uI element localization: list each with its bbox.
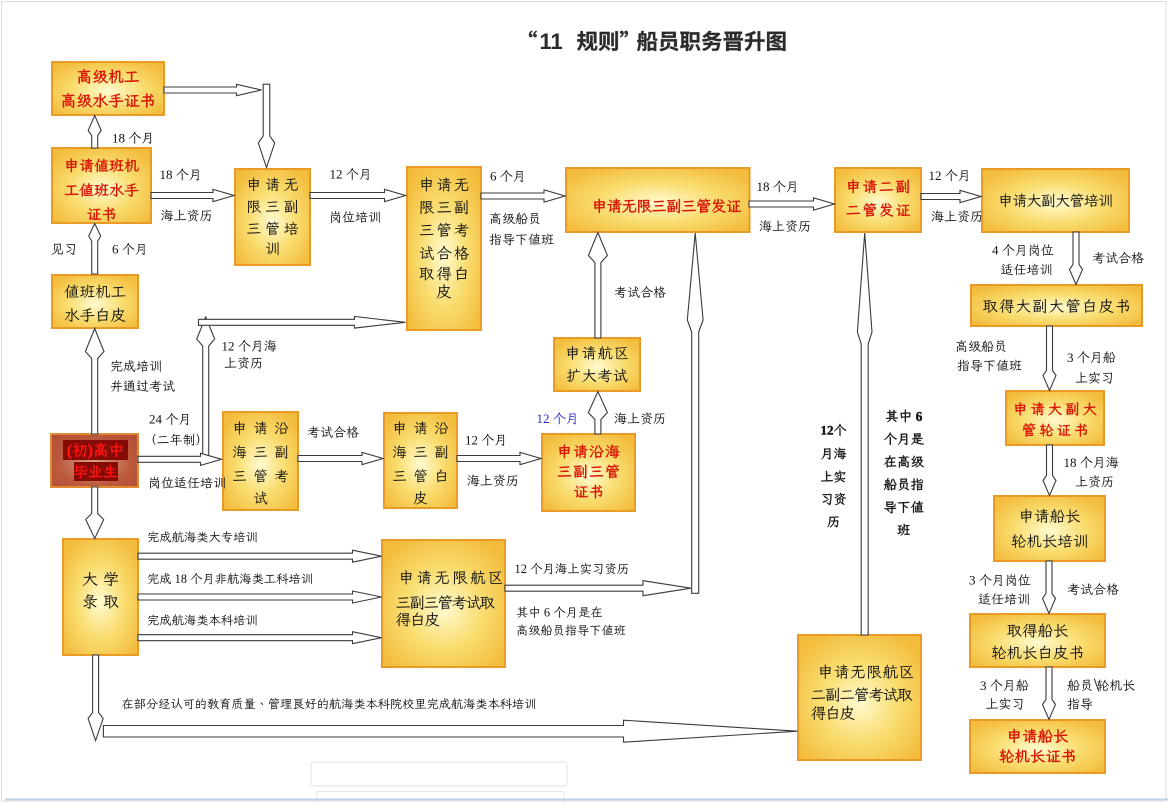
svg-text:(: ( [67, 443, 72, 460]
svg-text:12: 12 [821, 423, 834, 438]
svg-text:6: 6 [112, 242, 119, 257]
svg-text:6: 6 [544, 606, 550, 620]
svg-text:4: 4 [992, 243, 999, 258]
svg-text:12: 12 [465, 432, 478, 447]
svg-text:24: 24 [149, 412, 163, 427]
svg-text:12: 12 [222, 338, 235, 353]
svg-text:3: 3 [980, 678, 987, 693]
svg-text:18: 18 [757, 179, 770, 194]
svg-text:12: 12 [929, 168, 942, 183]
svg-text:11: 11 [540, 29, 563, 54]
svg-text:12: 12 [515, 562, 527, 576]
svg-text:18: 18 [175, 572, 187, 586]
svg-text:12: 12 [537, 411, 550, 426]
svg-text:18: 18 [1064, 455, 1077, 470]
svg-text:6: 6 [490, 169, 497, 184]
svg-text:12: 12 [330, 167, 343, 182]
svg-text:18: 18 [160, 167, 173, 182]
svg-text:18: 18 [112, 130, 125, 145]
svg-text:): ) [88, 443, 93, 460]
svg-text:6: 6 [916, 409, 923, 424]
svg-text:3: 3 [1067, 350, 1074, 365]
svg-text:3: 3 [969, 573, 976, 588]
